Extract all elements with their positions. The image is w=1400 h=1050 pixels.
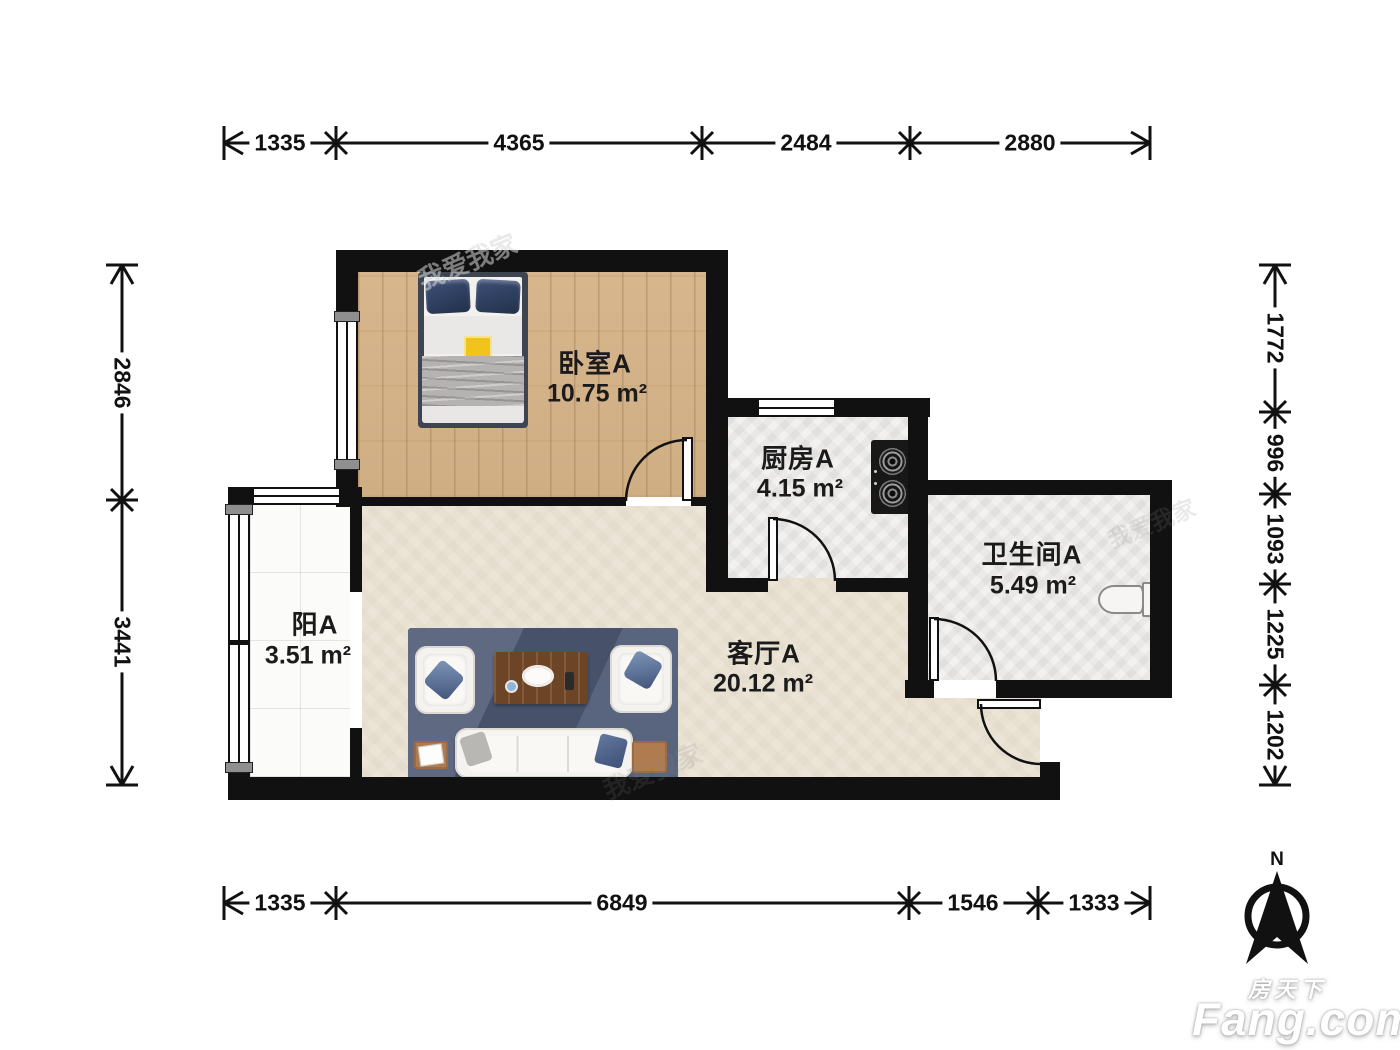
balcony-window-mullion xyxy=(228,640,250,645)
compass-icon xyxy=(1246,871,1308,964)
bed-pillow-right xyxy=(475,279,521,314)
dim-right-4: 1225 xyxy=(1262,603,1289,664)
bed-foot-sheet xyxy=(422,406,524,423)
stove-knob xyxy=(874,482,877,485)
floorplan-canvas: 1335 4365 2484 2880 1335 6849 1546 1333 … xyxy=(0,0,1400,1050)
side-table-right xyxy=(632,741,667,773)
armchair-left xyxy=(415,646,475,714)
wall-kitchen-bath-divider xyxy=(908,398,928,698)
bathroom-label: 卫生间A xyxy=(982,535,1083,572)
bed-pillow-left xyxy=(425,279,471,314)
bed-blanket xyxy=(422,356,524,406)
dim-right-3: 1093 xyxy=(1262,508,1289,569)
wall-balcony-divider-top xyxy=(350,506,362,592)
balcony-top-window xyxy=(252,487,341,505)
dim-bottom-3: 1546 xyxy=(942,890,1003,917)
wall-bedroom-top xyxy=(336,250,728,272)
dim-right-1: 1772 xyxy=(1262,307,1289,368)
sofa-pillow-blue xyxy=(594,733,628,769)
wall-kitchen-bottom-right xyxy=(836,578,928,592)
sofa xyxy=(455,728,633,778)
living-label: 客厅A xyxy=(727,634,801,671)
bedroom-window-sill-bottom xyxy=(334,459,360,470)
kitchen-door xyxy=(768,517,778,581)
dim-left-1: 2846 xyxy=(109,352,136,413)
bathroom-area: 5.49 m² xyxy=(990,572,1076,601)
stove xyxy=(871,440,913,514)
papers xyxy=(418,743,445,766)
dim-top-4: 2880 xyxy=(999,130,1060,157)
toilet-bowl xyxy=(1098,585,1144,614)
wall-kitchen-left xyxy=(706,250,728,592)
dim-bottom-2: 6849 xyxy=(591,890,652,917)
bedroom-door xyxy=(682,437,693,501)
dim-right-2: 996 xyxy=(1262,429,1289,477)
bedroom-area: 10.75 m² xyxy=(547,380,647,409)
entry-door xyxy=(977,699,1041,709)
dish xyxy=(505,680,518,693)
living-room-floor-entry xyxy=(908,698,1040,777)
dim-bottom-4: 1333 xyxy=(1063,890,1124,917)
wall-entry-stub xyxy=(1040,762,1060,800)
wall-bathroom-top xyxy=(908,480,1172,495)
wall-bathroom-bottom-right xyxy=(996,680,1172,698)
bedroom-window-sill-top xyxy=(334,311,360,322)
balcony-label: 阳A xyxy=(292,605,339,642)
bedroom-label: 卧室A xyxy=(558,344,632,381)
wall-bathroom-right xyxy=(1150,480,1172,698)
kitchen-window xyxy=(757,398,836,417)
wall-bedroom-bottom-left xyxy=(352,497,626,506)
bathroom-door xyxy=(929,617,939,681)
kitchen-label: 厨房A xyxy=(761,439,835,476)
dim-bottom-1: 1335 xyxy=(249,890,310,917)
balcony-window-sill-top xyxy=(225,504,253,515)
dim-top-1: 1335 xyxy=(249,130,310,157)
kitchen-area: 4.15 m² xyxy=(757,475,843,504)
compass-north-label: N xyxy=(1270,849,1284,871)
living-area: 20.12 m² xyxy=(713,670,813,699)
plate xyxy=(522,665,554,687)
armchair-right xyxy=(610,645,672,713)
coffee-table xyxy=(494,652,588,704)
dim-left-2: 3441 xyxy=(109,611,136,672)
balcony-window-sill-bottom xyxy=(225,762,253,773)
dim-right-5: 1202 xyxy=(1262,704,1289,765)
balcony-area: 3.51 m² xyxy=(265,642,351,671)
stove-knob xyxy=(874,470,877,473)
wall-bathroom-bottom-left xyxy=(905,680,934,698)
wall-balcony-divider-bottom xyxy=(350,728,362,777)
wall-kitchen-bottom-left xyxy=(706,578,768,592)
dim-top-2: 4365 xyxy=(488,130,549,157)
bed xyxy=(418,272,528,428)
wall-bedroom-bottom-right xyxy=(691,497,706,506)
stove-burner-top xyxy=(878,447,907,476)
dim-top-3: 2484 xyxy=(775,130,836,157)
remote-control xyxy=(565,672,574,690)
wall-bottom xyxy=(228,777,1060,800)
brand-logo-en: Fang.com xyxy=(1192,992,1400,1046)
stove-burner-bottom xyxy=(878,479,907,508)
side-table-left xyxy=(414,741,448,769)
bedroom-floor xyxy=(358,272,706,497)
bedroom-window xyxy=(336,313,358,471)
